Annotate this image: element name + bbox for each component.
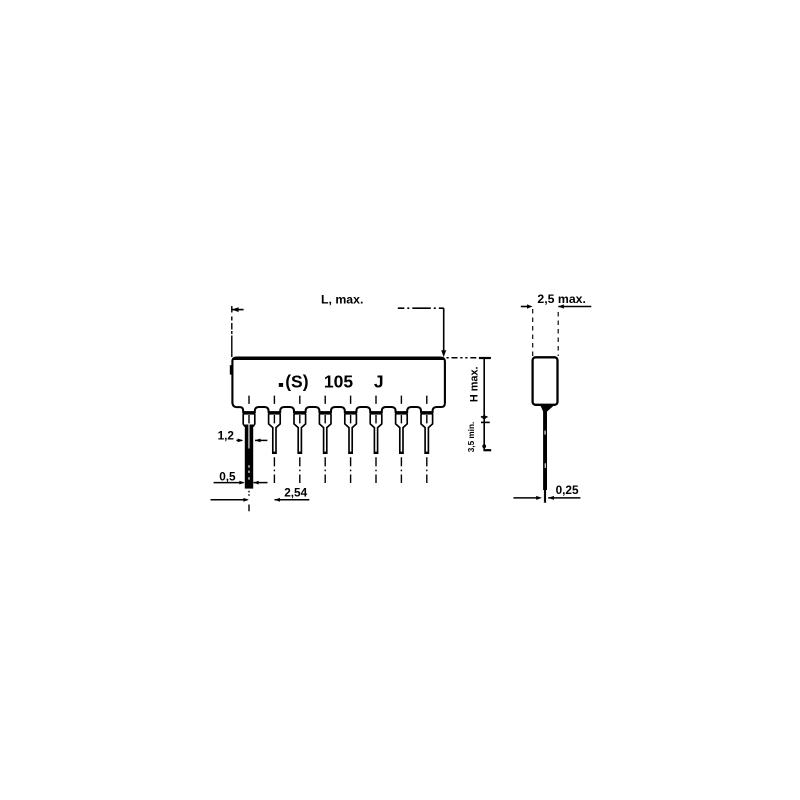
svg-text:0,5: 0,5 [219, 469, 236, 483]
svg-text:1,2: 1,2 [218, 429, 235, 443]
svg-text:2,54: 2,54 [284, 486, 307, 500]
svg-text:(S): (S) [285, 372, 308, 392]
svg-text:J: J [374, 372, 384, 392]
svg-text:L, max.: L, max. [321, 293, 363, 307]
svg-text:2,5 max.: 2,5 max. [537, 292, 586, 306]
svg-text:105: 105 [324, 372, 353, 392]
svg-text:H max.: H max. [468, 366, 480, 402]
svg-text:0,25: 0,25 [556, 483, 579, 497]
svg-text:3,5 min.: 3,5 min. [467, 422, 476, 453]
